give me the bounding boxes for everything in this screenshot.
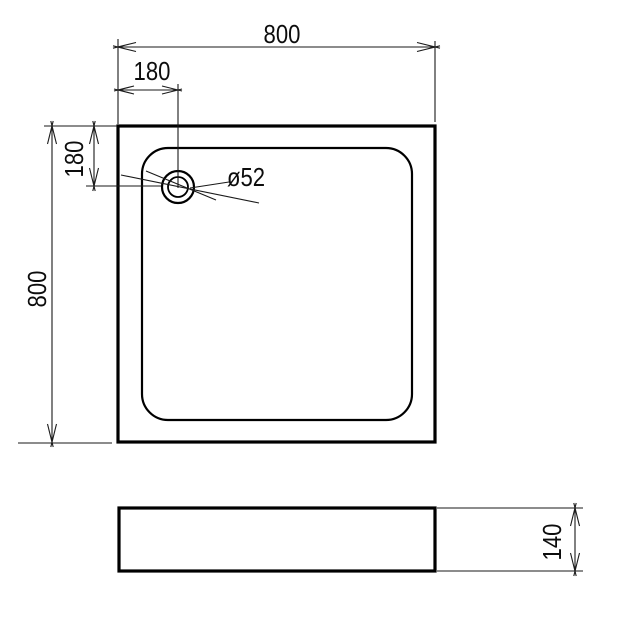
tray-outline (118, 126, 435, 442)
dimension-arrowheads (48, 43, 580, 577)
technical-drawing-canvas: 800 180 800 180 ø52 140 (0, 0, 620, 621)
dim-label-drain-diameter: ø52 (227, 164, 265, 190)
extension-lines (18, 39, 583, 571)
dim-label-overall-width: 800 (264, 21, 301, 47)
dim-label-drain-offset-y: 180 (61, 141, 87, 178)
side-view (119, 508, 435, 571)
top-view (118, 126, 435, 442)
tray-inner-edge (142, 148, 412, 420)
dim-label-overall-height: 800 (24, 271, 50, 308)
dim-label-side-height: 140 (539, 524, 565, 561)
dim-label-drain-offset-x: 180 (134, 58, 171, 84)
drawing-geometry (0, 0, 620, 621)
side-view-outline (119, 508, 435, 571)
